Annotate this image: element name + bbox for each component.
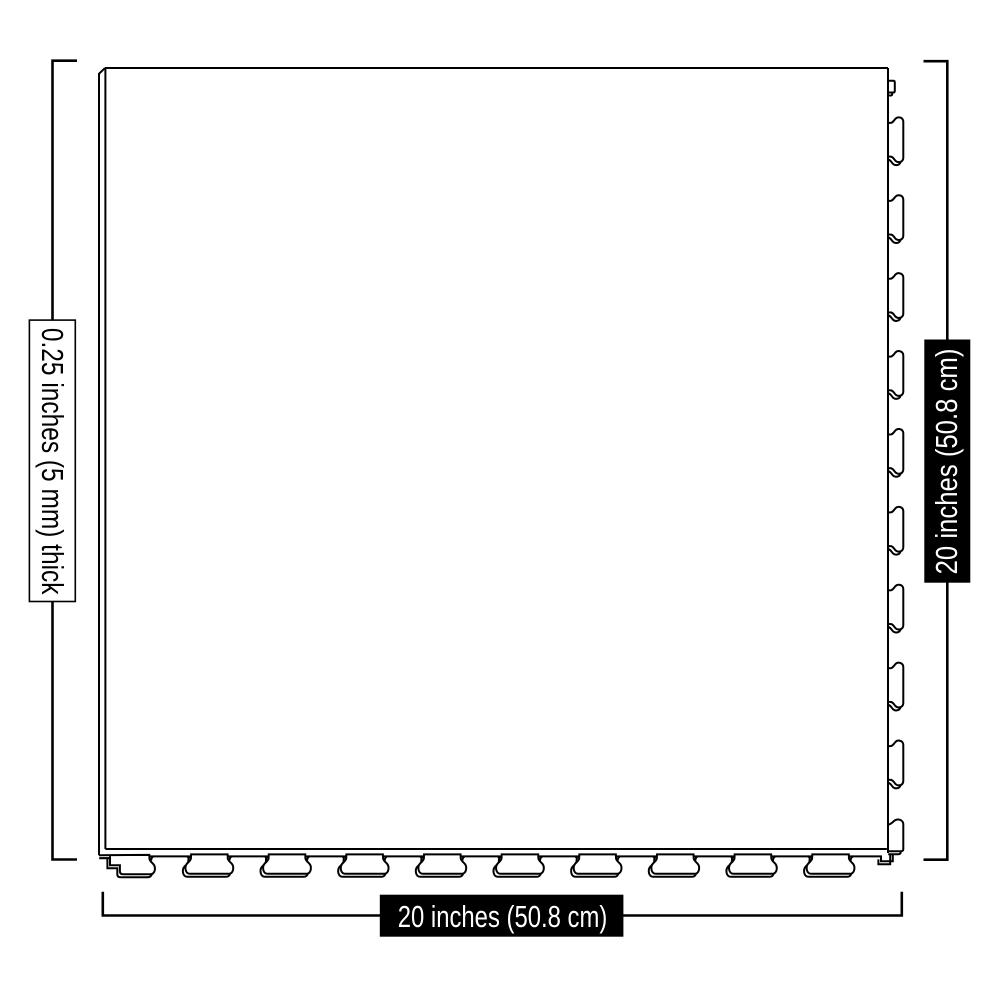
svg-text:0.25 inches (5 mm) thick: 0.25 inches (5 mm) thick <box>35 328 69 595</box>
svg-text:20 inches (50.8 cm): 20 inches (50.8 cm) <box>398 899 608 934</box>
svg-text:20 inches (50.8 cm): 20 inches (50.8 cm) <box>930 349 965 575</box>
